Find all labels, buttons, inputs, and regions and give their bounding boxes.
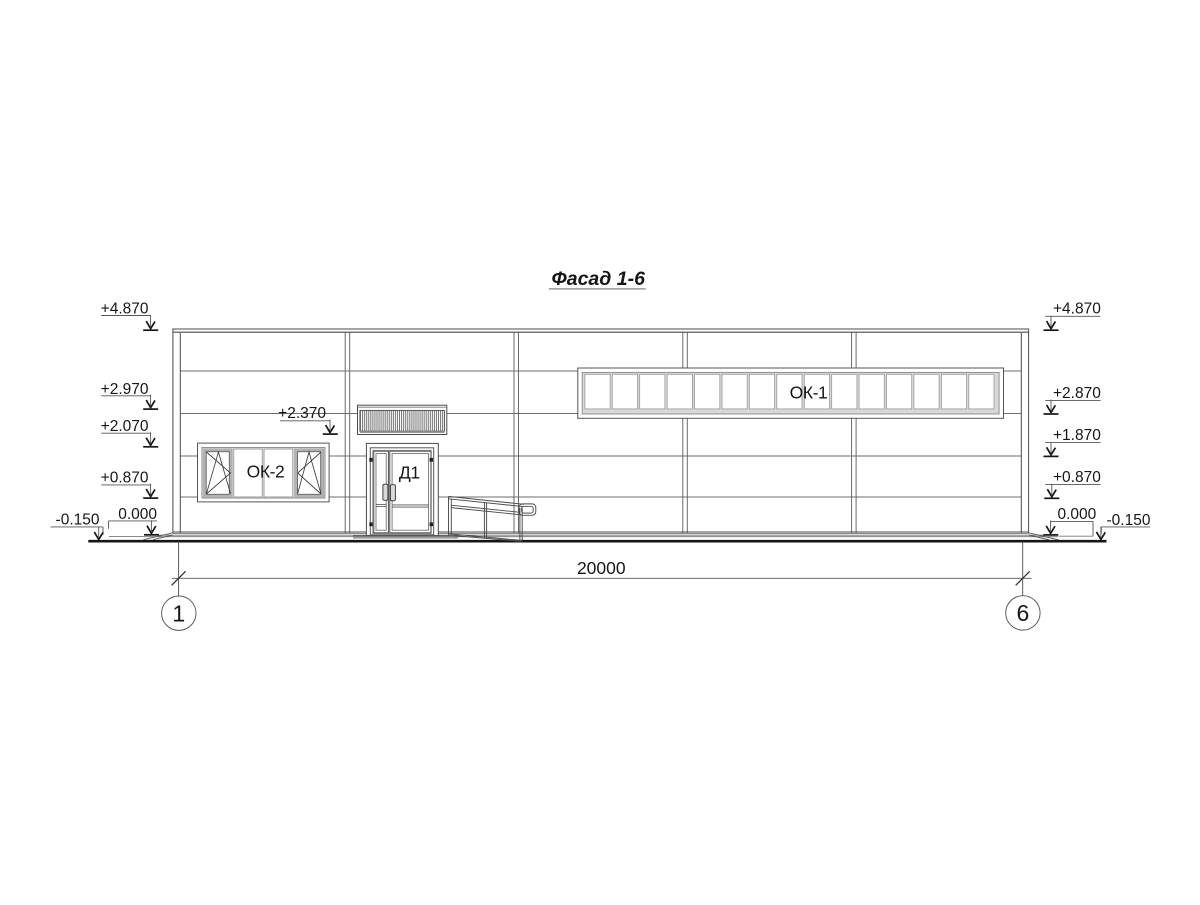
svg-text:+2.870: +2.870 — [1053, 385, 1101, 402]
svg-text:+2.070: +2.070 — [101, 418, 149, 435]
svg-text:Д1: Д1 — [399, 463, 420, 483]
svg-text:1: 1 — [172, 601, 185, 627]
svg-text:Фасад 1-6: Фасад 1-6 — [552, 268, 646, 290]
svg-text:+1.870: +1.870 — [1053, 427, 1101, 444]
svg-text:20000: 20000 — [577, 558, 626, 578]
svg-text:+0.870: +0.870 — [101, 469, 149, 486]
svg-text:+2.370: +2.370 — [278, 405, 326, 422]
svg-text:-0.150: -0.150 — [56, 511, 100, 528]
svg-text:+0.870: +0.870 — [1053, 469, 1101, 486]
svg-text:-0.150: -0.150 — [1107, 512, 1151, 529]
svg-text:0.000: 0.000 — [1058, 506, 1097, 523]
svg-text:+4.870: +4.870 — [1053, 301, 1101, 318]
svg-text:ОК-1: ОК-1 — [790, 382, 828, 402]
svg-text:ОК-2: ОК-2 — [247, 461, 285, 481]
svg-text:6: 6 — [1017, 600, 1030, 626]
